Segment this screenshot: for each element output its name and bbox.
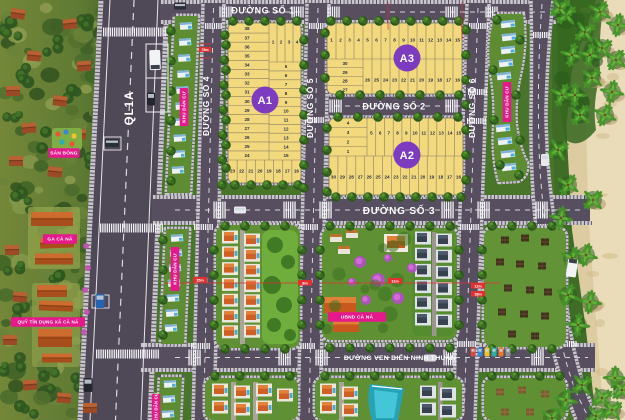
svg-text:11: 11: [421, 131, 426, 136]
svg-text:18: 18: [437, 78, 443, 83]
svg-text:19: 19: [428, 78, 434, 83]
svg-text:10: 10: [410, 38, 416, 43]
svg-text:KHU DÂN CƯ: KHU DÂN CƯ: [181, 91, 187, 123]
svg-text:23: 23: [392, 78, 398, 83]
svg-text:24: 24: [384, 175, 390, 180]
svg-text:13: 13: [439, 131, 445, 136]
svg-text:ĐƯỜNG SỐ 6: ĐƯỜNG SỐ 6: [466, 78, 477, 138]
svg-text:16: 16: [455, 78, 461, 83]
svg-text:24: 24: [383, 78, 389, 83]
svg-text:30: 30: [244, 99, 250, 104]
svg-text:29: 29: [244, 108, 250, 113]
svg-text:5: 5: [366, 38, 369, 43]
svg-text:18: 18: [276, 169, 282, 174]
svg-text:28: 28: [342, 79, 348, 84]
svg-text:17: 17: [285, 169, 291, 174]
svg-text:8: 8: [396, 131, 399, 136]
svg-text:15: 15: [456, 131, 462, 136]
svg-text:2: 2: [339, 38, 342, 43]
svg-text:25: 25: [374, 78, 380, 83]
svg-text:25: 25: [376, 175, 382, 180]
svg-text:6: 6: [285, 73, 288, 78]
svg-text:8m: 8m: [302, 282, 308, 286]
svg-text:12m: 12m: [391, 280, 399, 284]
svg-text:7: 7: [285, 82, 288, 87]
svg-text:33: 33: [244, 72, 250, 77]
svg-text:7: 7: [388, 131, 391, 136]
svg-text:ĐƯỜNG SỐ 3: ĐƯỜNG SỐ 3: [363, 203, 436, 217]
svg-text:3: 3: [347, 130, 350, 135]
svg-text:9: 9: [402, 38, 405, 43]
svg-text:ĐƯỜNG SỐ 4: ĐƯỜNG SỐ 4: [200, 76, 211, 136]
svg-text:14: 14: [447, 131, 453, 136]
svg-text:QUỸ TÍN DỤNG XÃ CÀ NÁ: QUỸ TÍN DỤNG XÃ CÀ NÁ: [17, 318, 79, 325]
svg-text:28: 28: [349, 175, 355, 180]
svg-text:5: 5: [285, 64, 288, 69]
svg-text:23: 23: [230, 169, 236, 174]
svg-text:9: 9: [405, 131, 408, 136]
svg-text:15: 15: [455, 38, 461, 43]
svg-text:26: 26: [244, 135, 250, 140]
svg-text:QL1A: QL1A: [124, 91, 136, 126]
svg-text:19: 19: [429, 175, 435, 180]
svg-text:29: 29: [342, 70, 348, 75]
svg-text:34: 34: [244, 63, 250, 68]
svg-text:8: 8: [393, 38, 396, 43]
svg-text:12: 12: [283, 126, 289, 131]
svg-text:36: 36: [244, 44, 250, 49]
svg-text:26: 26: [367, 175, 373, 180]
svg-text:7: 7: [384, 38, 387, 43]
svg-text:20: 20: [419, 78, 425, 83]
svg-text:1: 1: [347, 149, 350, 154]
svg-text:15m: 15m: [196, 279, 204, 283]
svg-text:10: 10: [412, 131, 418, 136]
svg-text:14: 14: [446, 38, 452, 43]
svg-text:UBND CÀ NÁ: UBND CÀ NÁ: [341, 314, 374, 321]
svg-text:3: 3: [288, 40, 291, 45]
svg-text:18m: 18m: [474, 293, 482, 297]
svg-text:18: 18: [438, 175, 444, 180]
svg-text:ĐƯỜNG SỐ 5: ĐƯỜNG SỐ 5: [304, 78, 315, 138]
svg-text:17: 17: [447, 175, 453, 180]
svg-text:21: 21: [411, 175, 417, 180]
svg-text:6: 6: [375, 38, 378, 43]
svg-text:22: 22: [239, 169, 245, 174]
svg-text:17: 17: [446, 78, 452, 83]
svg-text:2: 2: [280, 40, 283, 45]
svg-text:10: 10: [283, 109, 289, 114]
svg-text:19: 19: [267, 169, 273, 174]
svg-text:24: 24: [244, 153, 250, 158]
svg-text:8: 8: [285, 91, 288, 96]
svg-text:16: 16: [294, 169, 300, 174]
svg-text:2: 2: [347, 139, 350, 144]
svg-text:25: 25: [244, 144, 250, 149]
svg-text:38: 38: [244, 26, 250, 31]
svg-text:11: 11: [419, 38, 424, 43]
svg-text:9: 9: [285, 100, 288, 105]
svg-text:27: 27: [244, 126, 250, 131]
svg-text:21: 21: [410, 78, 416, 83]
svg-text:30: 30: [342, 61, 348, 66]
svg-text:4: 4: [357, 38, 360, 43]
svg-text:ĐƯỜNG SỐ 2: ĐƯỜNG SỐ 2: [362, 101, 425, 112]
svg-text:12: 12: [430, 131, 436, 136]
svg-text:30: 30: [331, 175, 337, 180]
svg-text:A1: A1: [258, 95, 273, 107]
svg-text:37: 37: [244, 35, 250, 40]
svg-text:1: 1: [330, 38, 333, 43]
svg-text:22: 22: [402, 175, 408, 180]
svg-text:KHU DÂN CƯ: KHU DÂN CƯ: [172, 253, 178, 285]
svg-text:32: 32: [244, 81, 250, 86]
svg-text:35: 35: [244, 53, 250, 58]
svg-text:3: 3: [348, 38, 351, 43]
svg-text:ĐƯỜNG VEN BIỂN NINH THUẬN: ĐƯỜNG VEN BIỂN NINH THUẬN: [344, 353, 456, 362]
svg-text:13: 13: [437, 38, 443, 43]
svg-text:21: 21: [248, 169, 254, 174]
svg-text:28: 28: [244, 117, 250, 122]
svg-text:A2: A2: [400, 150, 415, 162]
svg-text:23: 23: [393, 175, 399, 180]
svg-text:KHU DÂN CƯ: KHU DÂN CƯ: [504, 86, 510, 118]
svg-text:26: 26: [365, 78, 371, 83]
svg-text:1: 1: [272, 40, 275, 45]
svg-text:13: 13: [283, 135, 289, 140]
svg-text:GA CÀ NÁ: GA CÀ NÁ: [47, 236, 72, 243]
svg-text:6: 6: [379, 131, 382, 136]
svg-text:4: 4: [347, 120, 350, 125]
svg-text:KHU DÂN CƯ: KHU DÂN CƯ: [154, 392, 159, 420]
svg-text:75m: 75m: [201, 48, 208, 52]
svg-text:15: 15: [283, 153, 289, 158]
svg-text:ĐƯỜNG SỐ 1: ĐƯỜNG SỐ 1: [231, 5, 294, 16]
svg-text:29: 29: [340, 175, 346, 180]
svg-text:20: 20: [420, 175, 426, 180]
svg-text:20: 20: [257, 169, 263, 174]
svg-text:12: 12: [428, 38, 434, 43]
svg-text:14: 14: [283, 144, 289, 149]
svg-text:A3: A3: [400, 53, 415, 65]
svg-text:16: 16: [456, 175, 462, 180]
svg-text:27: 27: [358, 175, 364, 180]
svg-text:11: 11: [284, 118, 289, 123]
svg-text:5: 5: [370, 131, 373, 136]
svg-text:12m: 12m: [474, 285, 482, 289]
svg-text:4: 4: [296, 40, 299, 45]
svg-text:31: 31: [244, 90, 250, 95]
svg-text:22: 22: [401, 78, 407, 83]
